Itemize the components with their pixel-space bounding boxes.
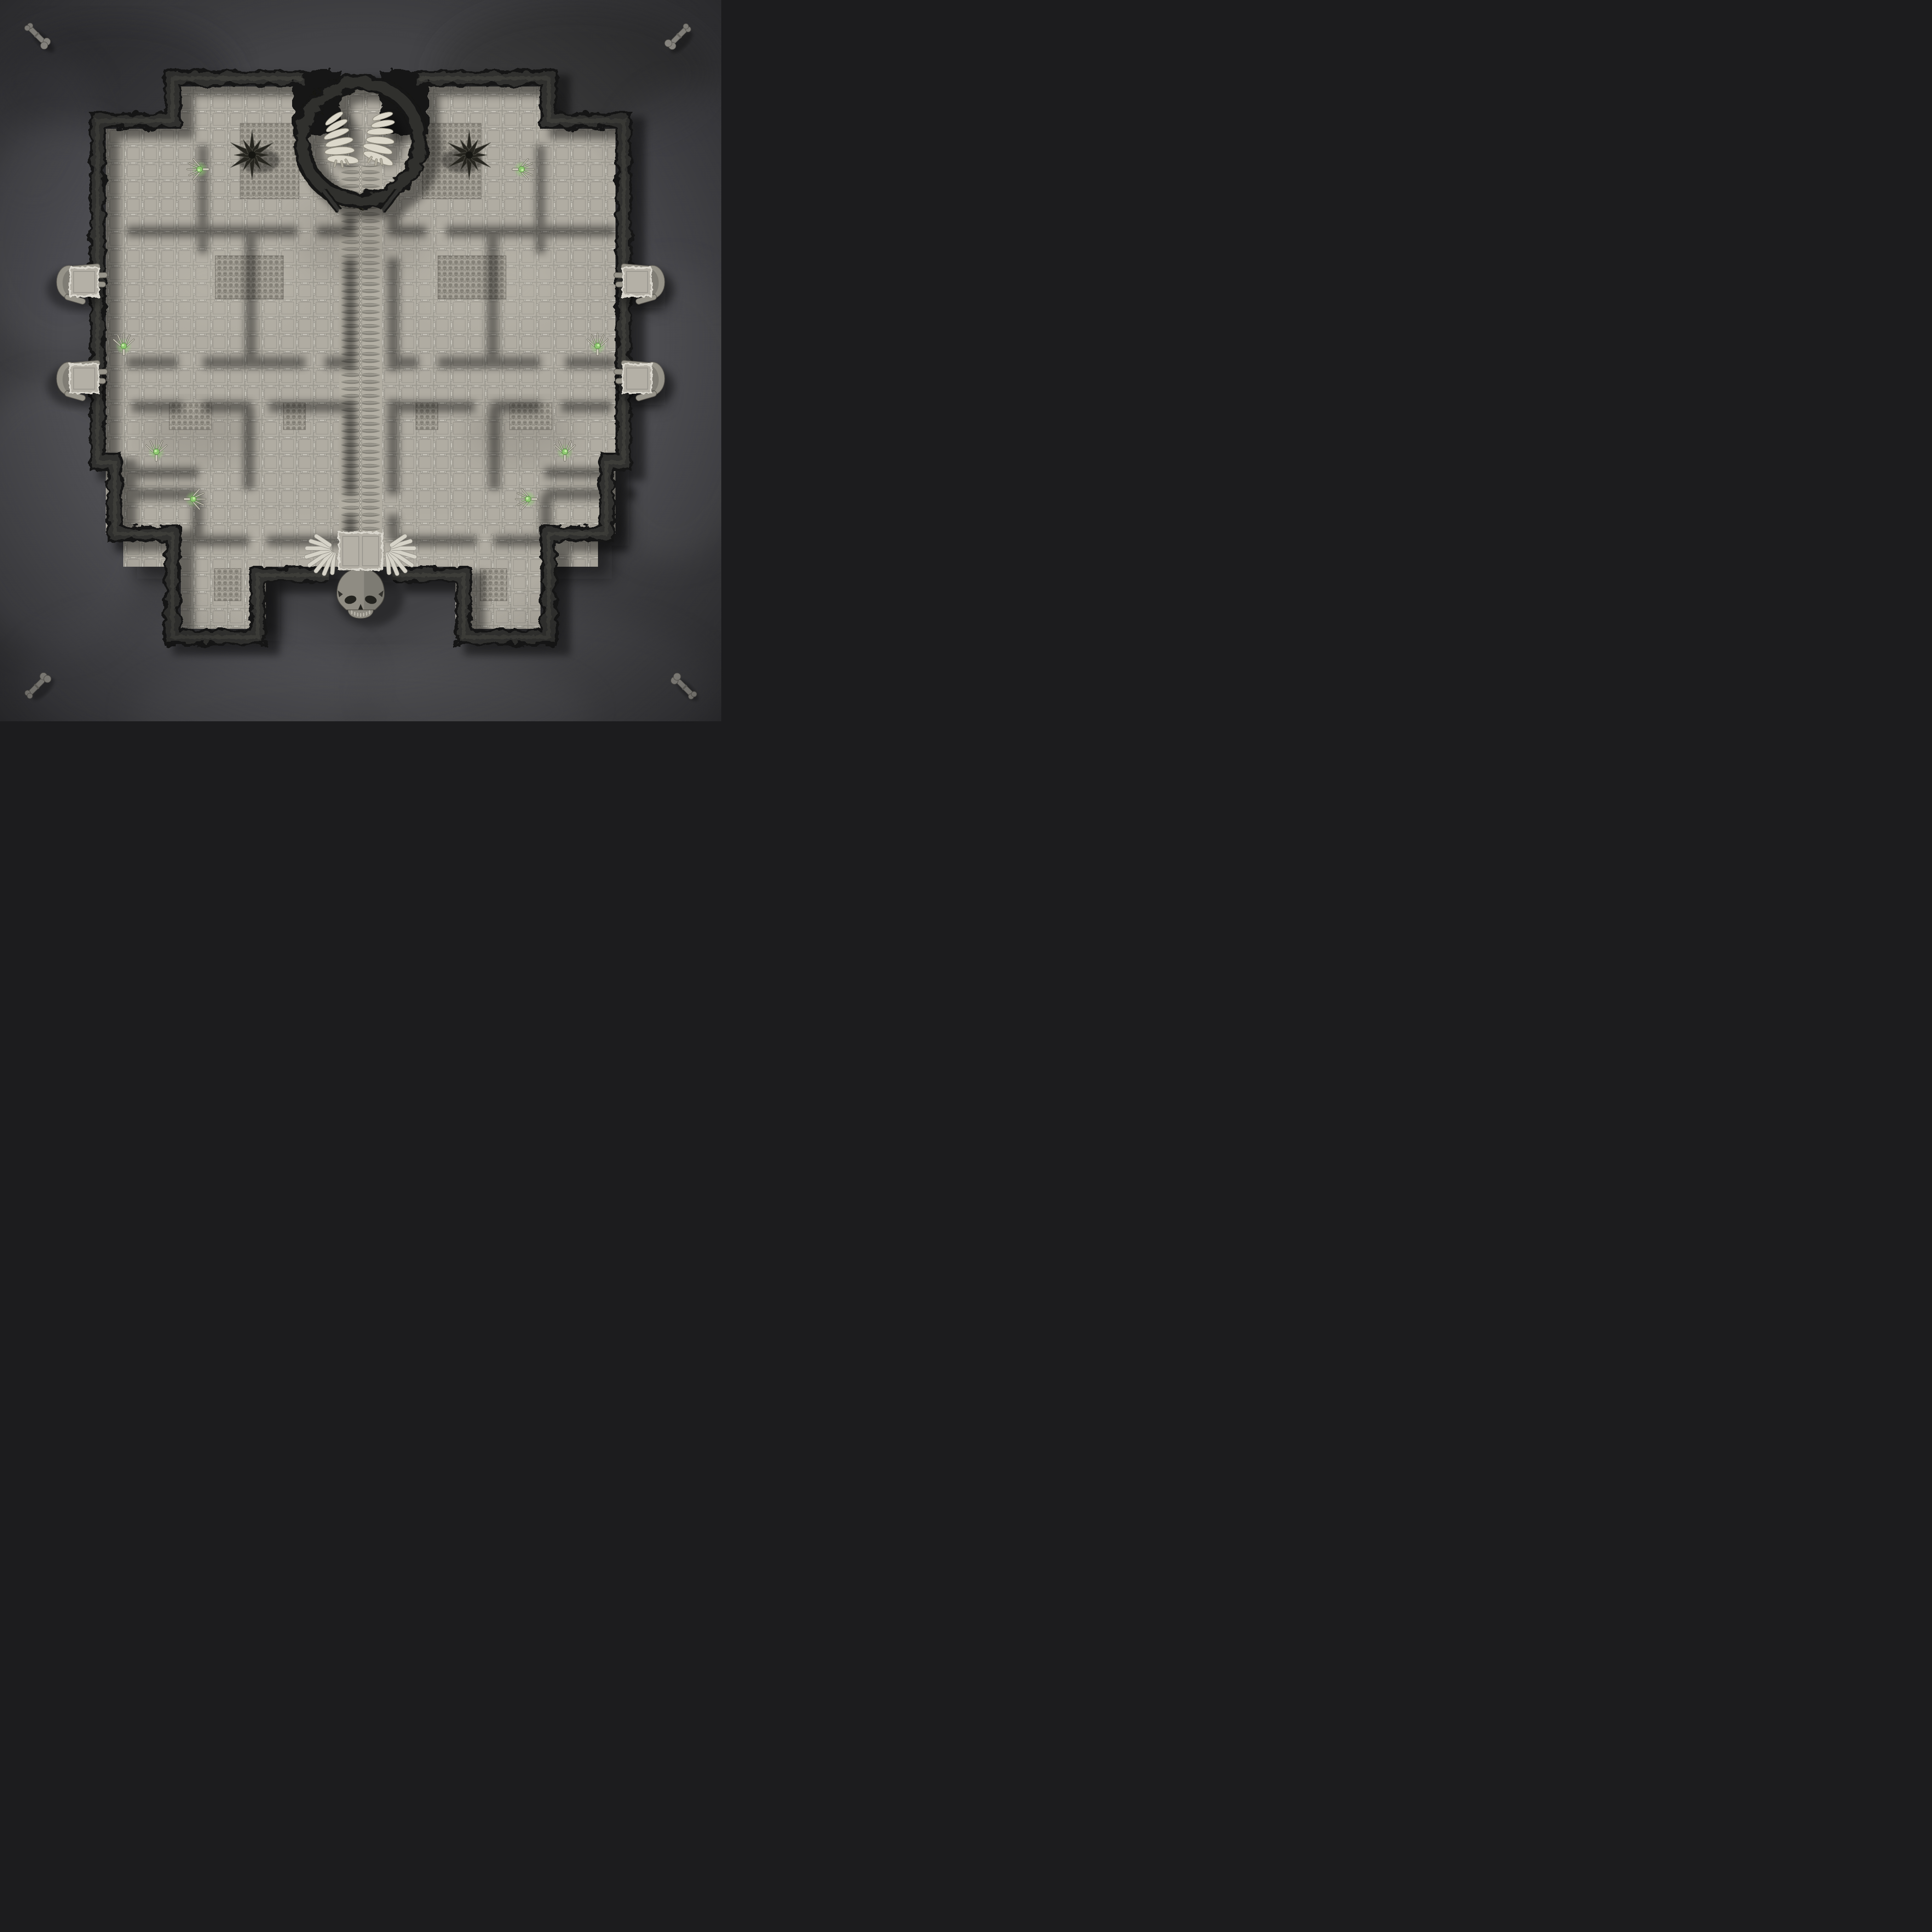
- dungeon-map-stage: [0, 0, 721, 721]
- vignette: [0, 0, 721, 721]
- bone-crypt-dungeon-map: [0, 0, 721, 721]
